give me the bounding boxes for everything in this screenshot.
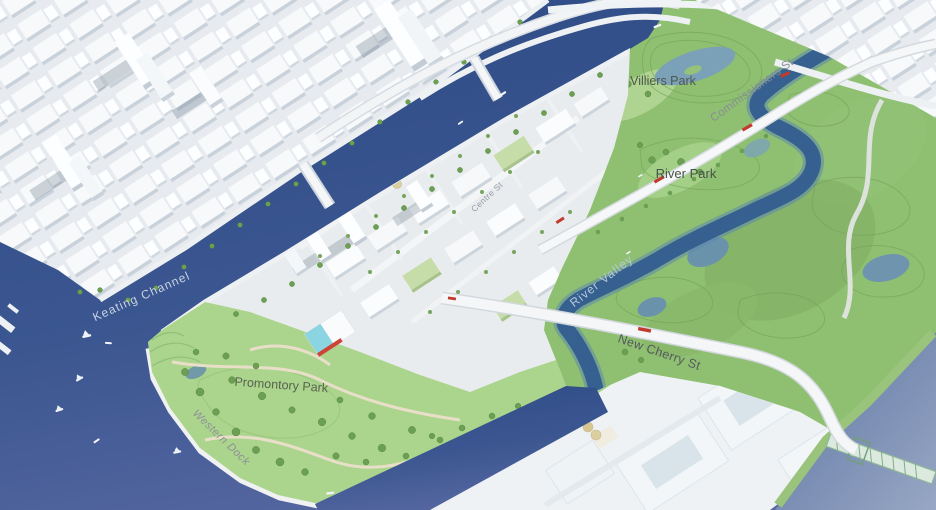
label-river-park: River Park: [656, 166, 717, 181]
aerial-masterplan-rendering: Villiers Park River Park Promontory Park…: [0, 0, 936, 510]
map-canvas: Villiers Park River Park Promontory Park…: [0, 0, 936, 510]
label-villiers-park: Villiers Park: [630, 74, 697, 88]
